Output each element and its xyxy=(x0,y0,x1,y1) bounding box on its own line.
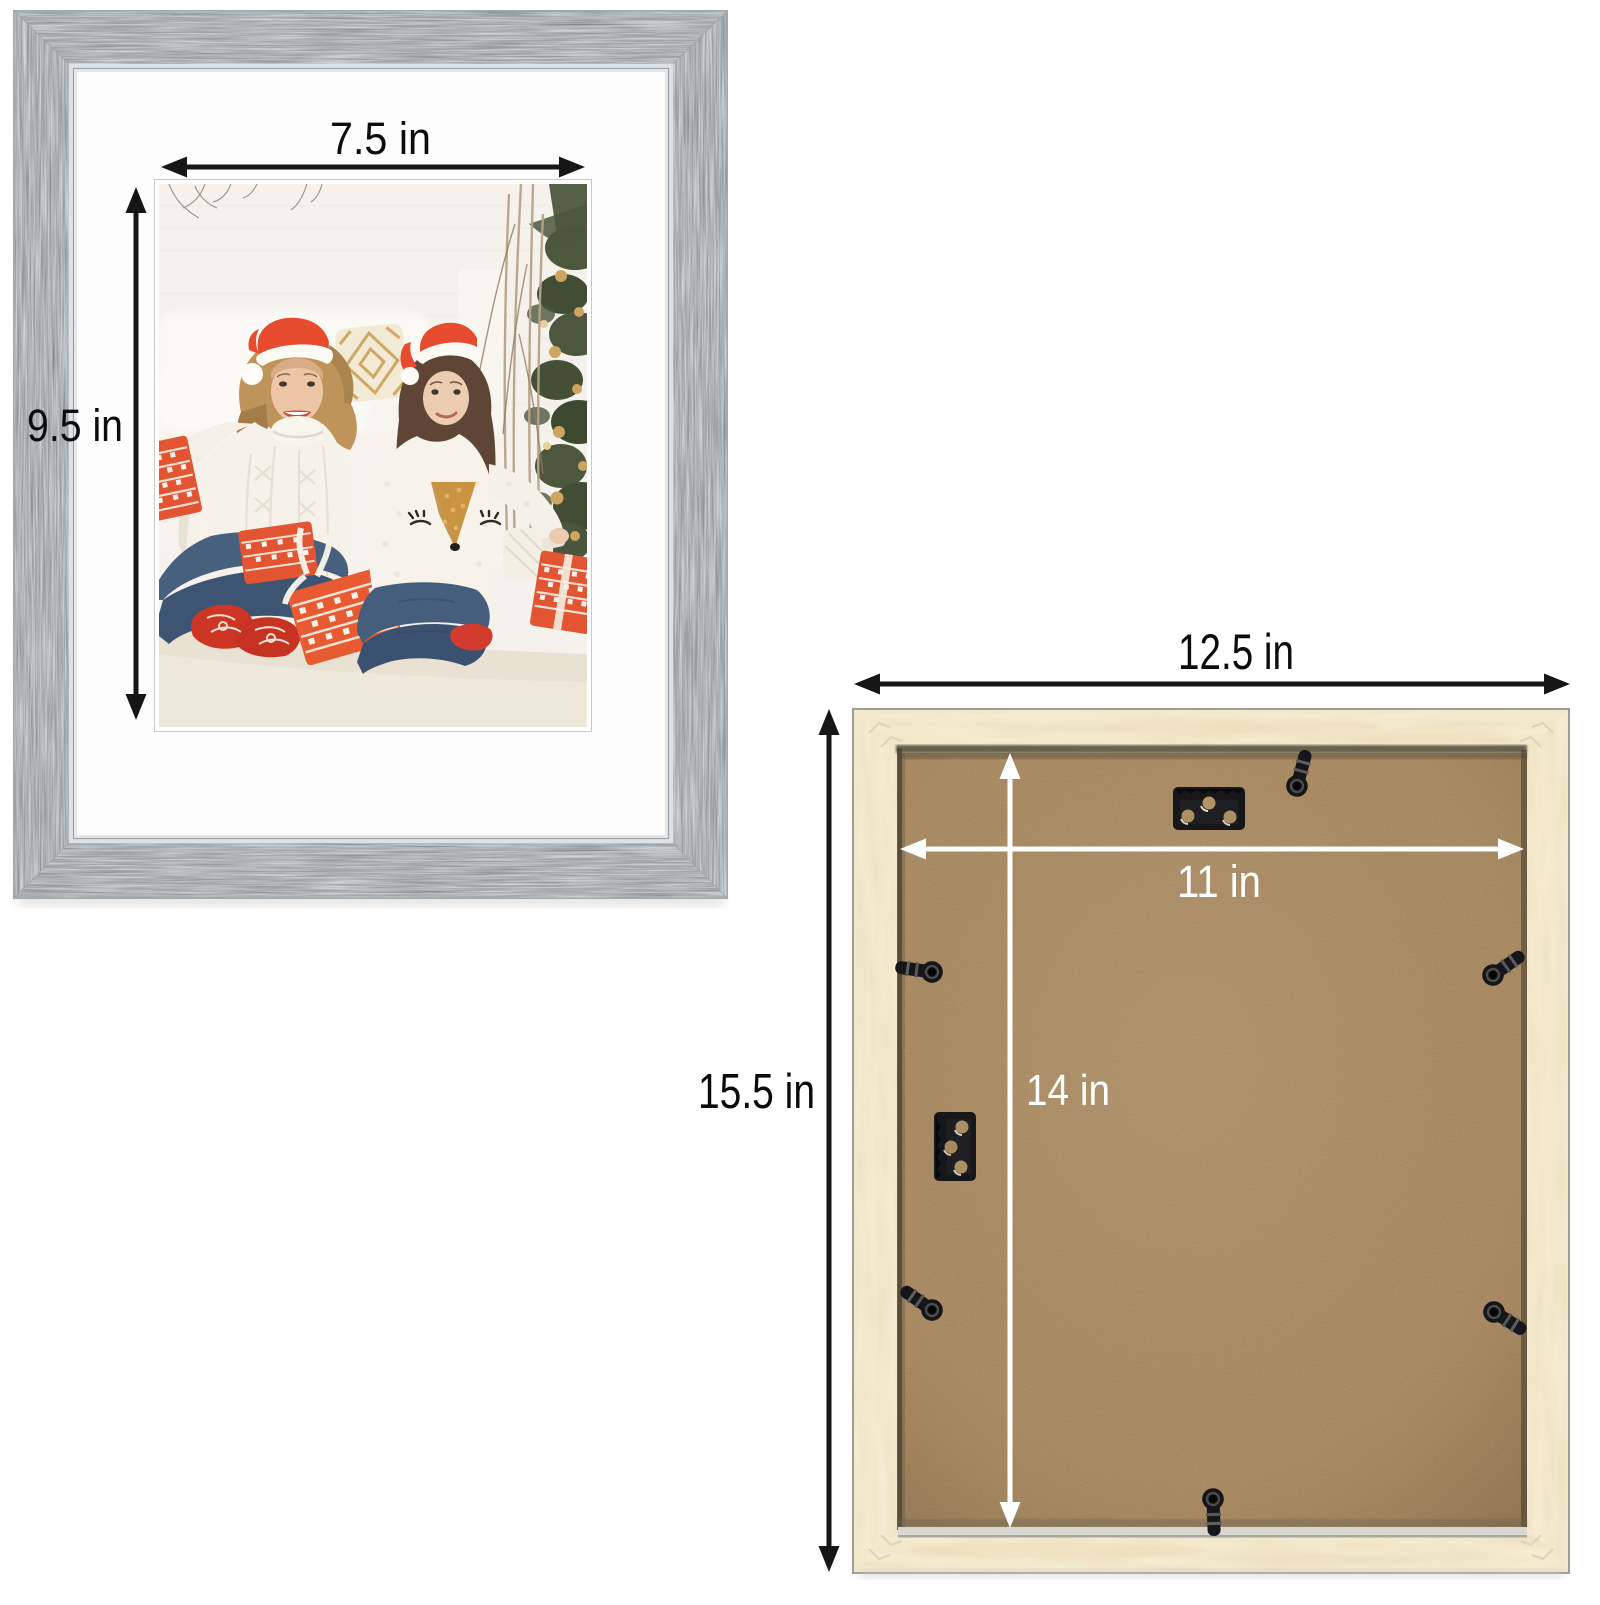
svg-text:7.5 in: 7.5 in xyxy=(330,113,431,164)
svg-text:15.5 in: 15.5 in xyxy=(698,1065,815,1119)
svg-text:9.5 in: 9.5 in xyxy=(27,400,123,451)
svg-text:14 in: 14 in xyxy=(1026,1066,1110,1115)
svg-text:11 in: 11 in xyxy=(1177,856,1261,907)
svg-text:12.5 in: 12.5 in xyxy=(1178,624,1294,680)
